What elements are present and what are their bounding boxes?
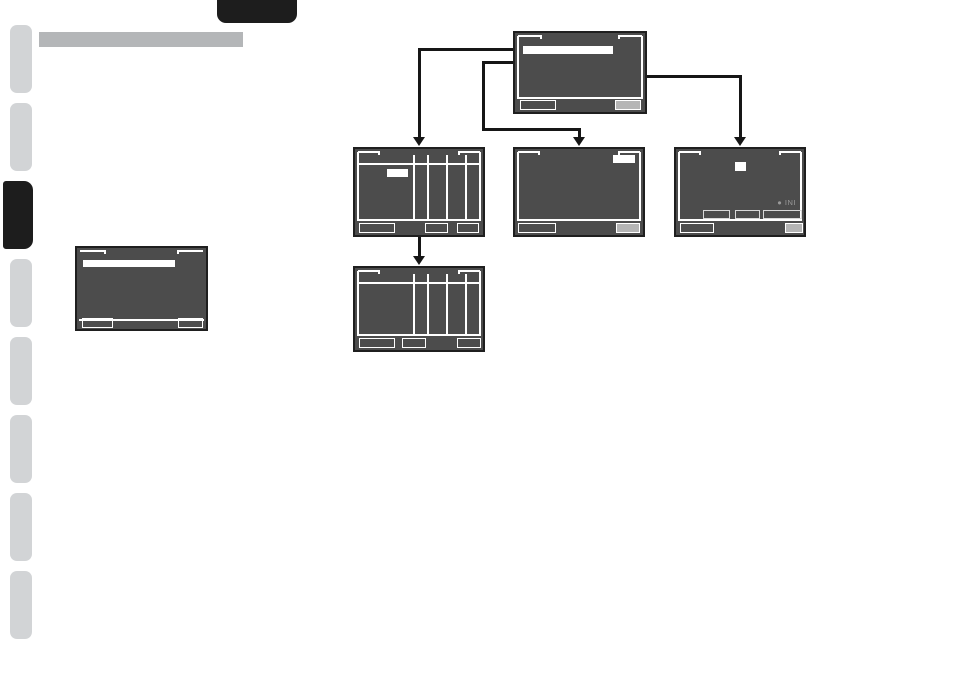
soft-button bbox=[457, 223, 479, 233]
table-header-line bbox=[358, 282, 480, 284]
sidebar-tab-7 bbox=[10, 493, 32, 561]
soft-button bbox=[178, 318, 203, 328]
selection-bar bbox=[523, 46, 613, 54]
arrow-down-icon bbox=[573, 137, 585, 146]
highlight-cell bbox=[735, 162, 746, 171]
connector-left-h bbox=[419, 48, 513, 51]
soft-button bbox=[359, 338, 395, 348]
connector-mid-v1 bbox=[482, 61, 485, 131]
arrow-down-icon bbox=[413, 137, 425, 146]
inner-button bbox=[763, 210, 802, 219]
table-column-line bbox=[446, 155, 448, 221]
page-corner-tab bbox=[217, 0, 297, 23]
table-column-line bbox=[465, 274, 467, 336]
section-title-bar bbox=[39, 32, 243, 47]
soft-button bbox=[425, 223, 448, 233]
root-menu-screen bbox=[513, 31, 647, 114]
connector-mid-h1 bbox=[482, 61, 513, 64]
screen-frame bbox=[357, 271, 481, 336]
selection-bar bbox=[83, 260, 175, 267]
connector-right-v bbox=[739, 75, 742, 138]
table-column-line bbox=[427, 155, 429, 221]
highlight-cell bbox=[613, 155, 635, 163]
connector-mid-h2 bbox=[482, 128, 581, 131]
soft-button bbox=[402, 338, 426, 348]
soft-button bbox=[457, 338, 481, 348]
sidebar-tab-3-active bbox=[3, 181, 33, 249]
manual-page: ● INI bbox=[0, 0, 954, 674]
inner-button bbox=[735, 210, 760, 219]
table-screen-with-highlight bbox=[353, 147, 485, 237]
soft-button bbox=[680, 223, 714, 233]
table-column-line bbox=[427, 274, 429, 336]
soft-button-filled bbox=[785, 223, 803, 233]
table-header-line bbox=[358, 163, 480, 165]
table-column-line bbox=[413, 155, 415, 221]
sidebar-tab-5 bbox=[10, 337, 32, 405]
table-screen-plain bbox=[353, 266, 485, 352]
init-label: ● INI bbox=[777, 199, 796, 207]
soft-button bbox=[520, 100, 556, 110]
highlight-cell bbox=[387, 169, 408, 177]
sidebar-tab-8 bbox=[10, 571, 32, 639]
sidebar-tab-4 bbox=[10, 259, 32, 327]
status-screen-init: ● INI bbox=[674, 147, 806, 237]
connector-table-v bbox=[418, 237, 421, 257]
table-column-line bbox=[465, 155, 467, 221]
connector-left-v bbox=[418, 48, 421, 138]
sidebar-tab-6 bbox=[10, 415, 32, 483]
table-column-line bbox=[446, 274, 448, 336]
screen-corner-mark bbox=[177, 250, 203, 254]
connector-right-h bbox=[647, 75, 742, 78]
soft-button bbox=[359, 223, 395, 233]
soft-button bbox=[518, 223, 556, 233]
sidebar-tab-1 bbox=[10, 25, 32, 93]
sidebar-tab-2 bbox=[10, 103, 32, 171]
arrow-down-icon bbox=[734, 137, 746, 146]
screen-corner-mark bbox=[80, 250, 106, 254]
soft-button bbox=[82, 318, 113, 328]
soft-button-filled bbox=[616, 223, 640, 233]
soft-button-filled bbox=[615, 100, 641, 110]
inner-button bbox=[703, 210, 730, 219]
arrow-down-icon bbox=[413, 256, 425, 265]
table-column-line bbox=[413, 274, 415, 336]
blank-screen-highlight-right bbox=[513, 147, 645, 237]
standalone-menu-screen bbox=[75, 246, 208, 331]
